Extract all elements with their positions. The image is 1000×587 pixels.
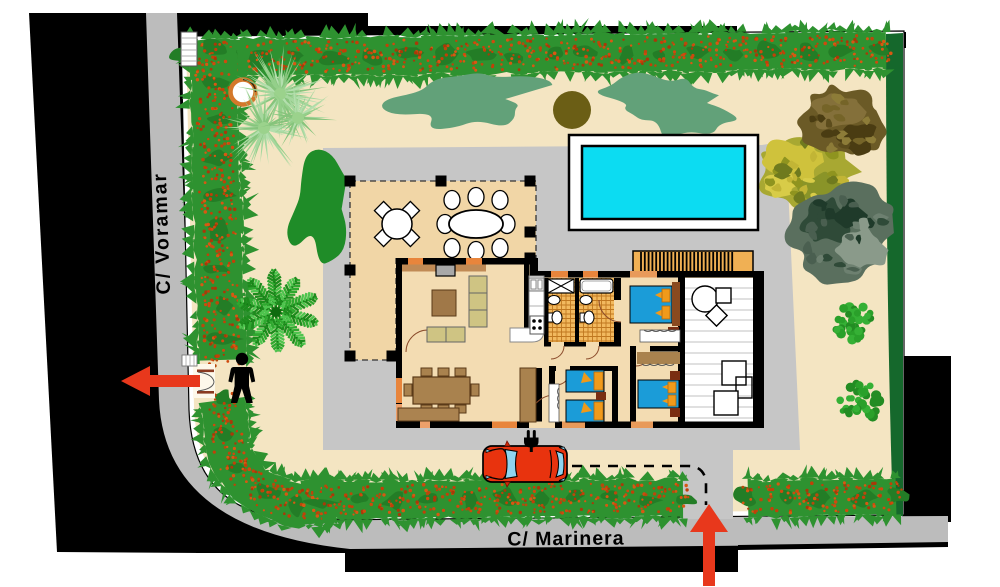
svg-text:C/ Marinera: C/ Marinera xyxy=(507,527,624,550)
svg-text:C/ Voramar: C/ Voramar xyxy=(149,172,175,295)
